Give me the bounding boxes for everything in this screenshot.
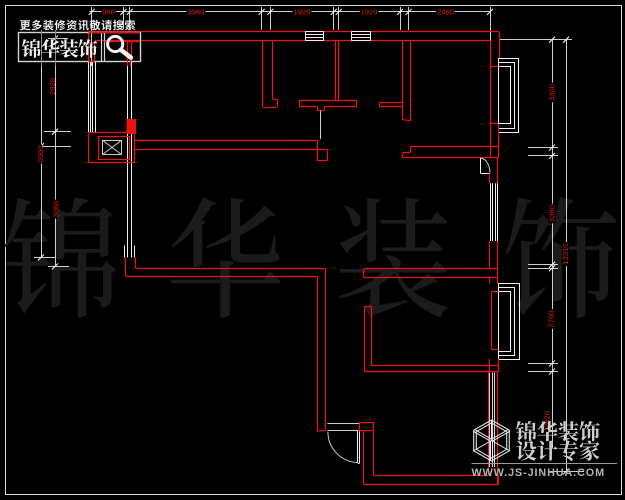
svg-text:13310: 13310 <box>561 243 570 264</box>
svg-text:1920: 1920 <box>294 8 311 17</box>
svg-text:3300: 3300 <box>548 84 557 101</box>
svg-text:2760: 2760 <box>547 311 556 328</box>
svg-text:2820: 2820 <box>48 78 57 95</box>
svg-text:3060: 3060 <box>52 201 61 218</box>
svg-text:2460: 2460 <box>437 8 454 17</box>
svg-text:960: 960 <box>102 8 115 17</box>
svg-text:3360: 3360 <box>548 205 557 222</box>
svg-text:3960: 3960 <box>188 8 205 17</box>
svg-text:WWW.JS-JINHUA.COM: WWW.JS-JINHUA.COM <box>472 467 605 479</box>
svg-text:0960: 0960 <box>36 146 45 163</box>
svg-text:1920: 1920 <box>361 8 378 17</box>
